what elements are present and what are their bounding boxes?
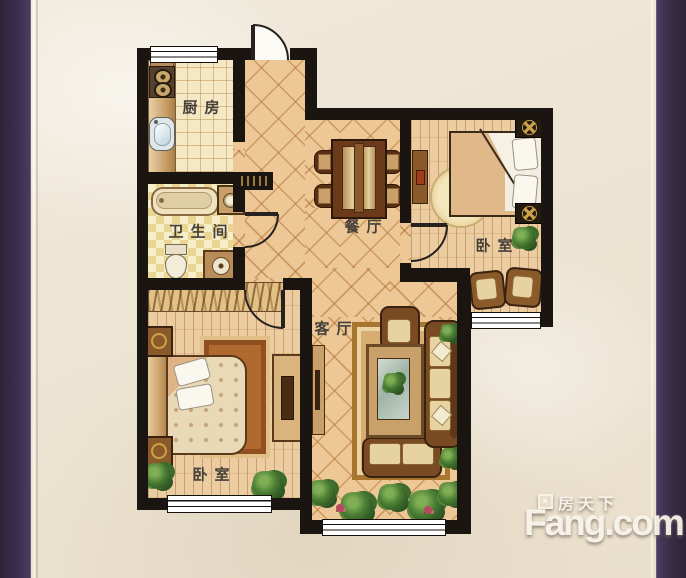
coffee-table (366, 344, 424, 438)
toilet-bowl (165, 254, 187, 279)
dining-table (331, 139, 387, 219)
living-window (322, 519, 446, 536)
sink-basin (154, 123, 171, 146)
watermark-brand-en: Fang.com (524, 502, 683, 544)
pillow (511, 137, 538, 171)
kitchen-window (150, 46, 218, 63)
living-label: 客厅 (307, 318, 358, 339)
nightstand-lamp (515, 203, 544, 224)
plant (378, 484, 408, 510)
tv-screen (315, 370, 320, 410)
bathtub (151, 187, 219, 216)
lamp-icon (522, 206, 537, 221)
bedroom-right-label: 卧室 (468, 235, 519, 256)
wall (400, 120, 411, 223)
dining-label: 餐厅 (337, 216, 388, 237)
wall (233, 184, 245, 212)
floor-plan-image: 卧室 卧室 (0, 0, 686, 578)
plant (308, 480, 336, 506)
dining-table-runner (354, 143, 364, 213)
left-frame-bar (0, 0, 31, 578)
plant (340, 492, 374, 522)
vanity-basin (212, 257, 230, 275)
wall (137, 278, 148, 510)
fang-watermark: 房天下 Fang.com (520, 468, 686, 548)
lamp-icon (522, 120, 537, 135)
tv-screen (281, 376, 294, 420)
bedroom-left-window (167, 495, 272, 513)
bedroom-left-door-arc (243, 288, 285, 330)
wall (400, 268, 470, 282)
wall (233, 247, 245, 278)
bathtub-drain (159, 198, 164, 203)
plant (144, 463, 172, 489)
wall (541, 108, 553, 327)
wall (137, 278, 245, 290)
wall (457, 282, 471, 534)
bathroom-door-arc (243, 212, 280, 249)
left-frame-line (33, 0, 35, 578)
nightstand-ornament (151, 443, 167, 459)
kitchen-label: 厨房 (175, 97, 226, 118)
bedroom-right-window (471, 312, 541, 329)
kitchen-stove (149, 66, 175, 98)
bedroom-right-door-arc (409, 223, 449, 263)
flower-accent (424, 506, 432, 514)
wall (137, 172, 233, 184)
bedroom-right-tv-cabinet (412, 150, 428, 204)
plant (440, 324, 458, 342)
table-plant (383, 373, 403, 393)
bathroom-label: 卫生间 (161, 221, 234, 242)
sink-faucet (154, 120, 158, 124)
bathtub-inner (156, 192, 212, 209)
duct-grille (241, 176, 269, 186)
bedroom-left-label: 卧室 (185, 464, 236, 485)
wall (137, 48, 148, 290)
nightstand (144, 326, 173, 357)
kitchen-sink (149, 117, 175, 151)
living-tv-cabinet (312, 345, 325, 435)
toilet (164, 244, 186, 278)
nightstand-lamp (515, 117, 544, 138)
tv-accent (416, 170, 425, 185)
bedroom-armchair (503, 266, 543, 308)
kitchen-doorway-floor (233, 142, 245, 172)
flower-accent (336, 504, 344, 512)
wall (233, 60, 245, 142)
wall (305, 108, 553, 120)
entry-door-arc (251, 23, 291, 62)
bedroom-left-tv-stand (272, 354, 303, 442)
stove-burner (154, 82, 172, 98)
nightstand-ornament (151, 333, 167, 349)
bedroom-armchair (468, 269, 507, 310)
wall (283, 278, 312, 290)
